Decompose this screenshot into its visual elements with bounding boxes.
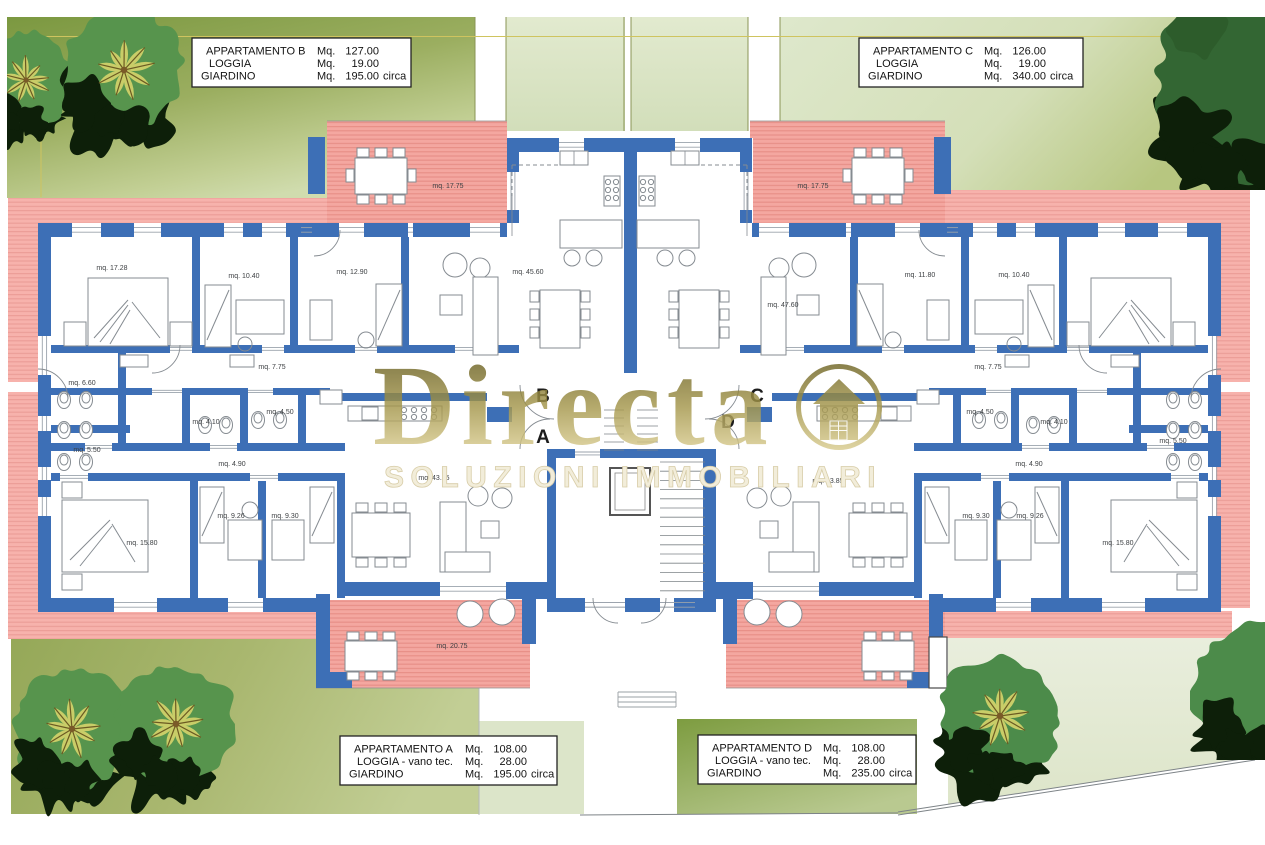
svg-text:mq. 4.50: mq. 4.50 [266, 409, 293, 416]
svg-text:mq. 10.40: mq. 10.40 [228, 273, 259, 280]
svg-text:Mq.: Mq. [984, 46, 1002, 58]
svg-text:APPARTAMENTO D: APPARTAMENTO D [712, 743, 812, 755]
svg-text:mq. 17.28: mq. 17.28 [96, 265, 127, 272]
svg-text:mq. 9.30: mq. 9.30 [271, 513, 298, 520]
svg-text:mq. 17.75: mq. 17.75 [432, 183, 463, 190]
svg-text:mq. 15.80: mq. 15.80 [1102, 540, 1133, 547]
svg-text:mq. 4.90: mq. 4.90 [218, 461, 245, 468]
svg-text:mq. 20.75: mq. 20.75 [436, 643, 467, 650]
svg-text:Mq.: Mq. [465, 744, 483, 756]
svg-text:19.00: 19.00 [1018, 58, 1046, 70]
svg-text:195.00: 195.00 [345, 70, 379, 82]
svg-text:mq. 9.26: mq. 9.26 [1016, 513, 1043, 520]
svg-text:mq. 7.75: mq. 7.75 [258, 364, 285, 371]
svg-text:Mq.: Mq. [984, 70, 1002, 82]
svg-text:GIARDINO: GIARDINO [201, 70, 256, 82]
svg-text:28.00: 28.00 [857, 755, 885, 767]
svg-text:LOGGIA - vano tec.: LOGGIA - vano tec. [357, 756, 453, 768]
svg-text:LOGGIA: LOGGIA [209, 58, 252, 70]
svg-text:mq. 4.50: mq. 4.50 [966, 409, 993, 416]
svg-text:GIARDINO: GIARDINO [707, 767, 762, 779]
svg-text:mq. 17.75: mq. 17.75 [797, 183, 828, 190]
svg-text:GIARDINO: GIARDINO [868, 70, 923, 82]
svg-text:Mq.: Mq. [823, 767, 841, 779]
svg-text:Mq.: Mq. [984, 58, 1002, 70]
svg-text:mq. 15.80: mq. 15.80 [126, 540, 157, 547]
svg-text:Mq.: Mq. [317, 70, 335, 82]
svg-text:SOLUZIONI IMMOBILIARI: SOLUZIONI IMMOBILIARI [384, 461, 882, 494]
svg-text:Mq.: Mq. [317, 46, 335, 58]
svg-text:circa: circa [1050, 70, 1074, 82]
svg-text:195.00: 195.00 [493, 768, 527, 780]
svg-text:Directa: Directa [373, 342, 774, 469]
svg-text:Mq.: Mq. [823, 755, 841, 767]
svg-text:mq. 5.50: mq. 5.50 [73, 447, 100, 454]
svg-text:circa: circa [889, 767, 913, 779]
svg-text:mq. 6.60: mq. 6.60 [68, 380, 95, 387]
svg-text:340.00: 340.00 [1012, 70, 1046, 82]
svg-text:mq. 9.26: mq. 9.26 [217, 513, 244, 520]
svg-text:235.00: 235.00 [851, 767, 885, 779]
svg-text:GIARDINO: GIARDINO [349, 768, 404, 780]
svg-text:127.00: 127.00 [345, 46, 379, 58]
svg-text:28.00: 28.00 [499, 756, 527, 768]
svg-text:APPARTAMENTO A: APPARTAMENTO A [354, 744, 453, 756]
svg-text:108.00: 108.00 [851, 743, 885, 755]
svg-text:mq. 4.10: mq. 4.10 [1040, 419, 1067, 426]
svg-text:mq. 9.30: mq. 9.30 [962, 513, 989, 520]
svg-text:126.00: 126.00 [1012, 46, 1046, 58]
svg-text:Mq.: Mq. [465, 756, 483, 768]
svg-text:mq. 12.90: mq. 12.90 [336, 269, 367, 276]
svg-text:19.00: 19.00 [351, 58, 379, 70]
svg-text:mq. 11.80: mq. 11.80 [905, 272, 936, 279]
svg-text:circa: circa [531, 768, 555, 780]
svg-text:mq. 7.75: mq. 7.75 [974, 364, 1001, 371]
svg-text:mq. 45.60: mq. 45.60 [512, 269, 543, 276]
svg-text:Mq.: Mq. [823, 743, 841, 755]
svg-text:mq. 4.90: mq. 4.90 [1015, 461, 1042, 468]
svg-text:circa: circa [383, 70, 407, 82]
svg-text:mq. 4.10: mq. 4.10 [192, 419, 219, 426]
svg-text:APPARTAMENTO C: APPARTAMENTO C [873, 46, 973, 58]
svg-text:mq. 10.40: mq. 10.40 [998, 272, 1029, 279]
svg-text:LOGGIA: LOGGIA [876, 58, 919, 70]
svg-text:Mq.: Mq. [465, 768, 483, 780]
svg-text:APPARTAMENTO B: APPARTAMENTO B [206, 46, 305, 58]
svg-text:mq. 5.50: mq. 5.50 [1159, 438, 1186, 445]
svg-text:mq. 47.60: mq. 47.60 [767, 302, 798, 309]
svg-text:108.00: 108.00 [493, 744, 527, 756]
svg-text:Mq.: Mq. [317, 58, 335, 70]
svg-text:LOGGIA - vano tec.: LOGGIA - vano tec. [715, 755, 811, 767]
